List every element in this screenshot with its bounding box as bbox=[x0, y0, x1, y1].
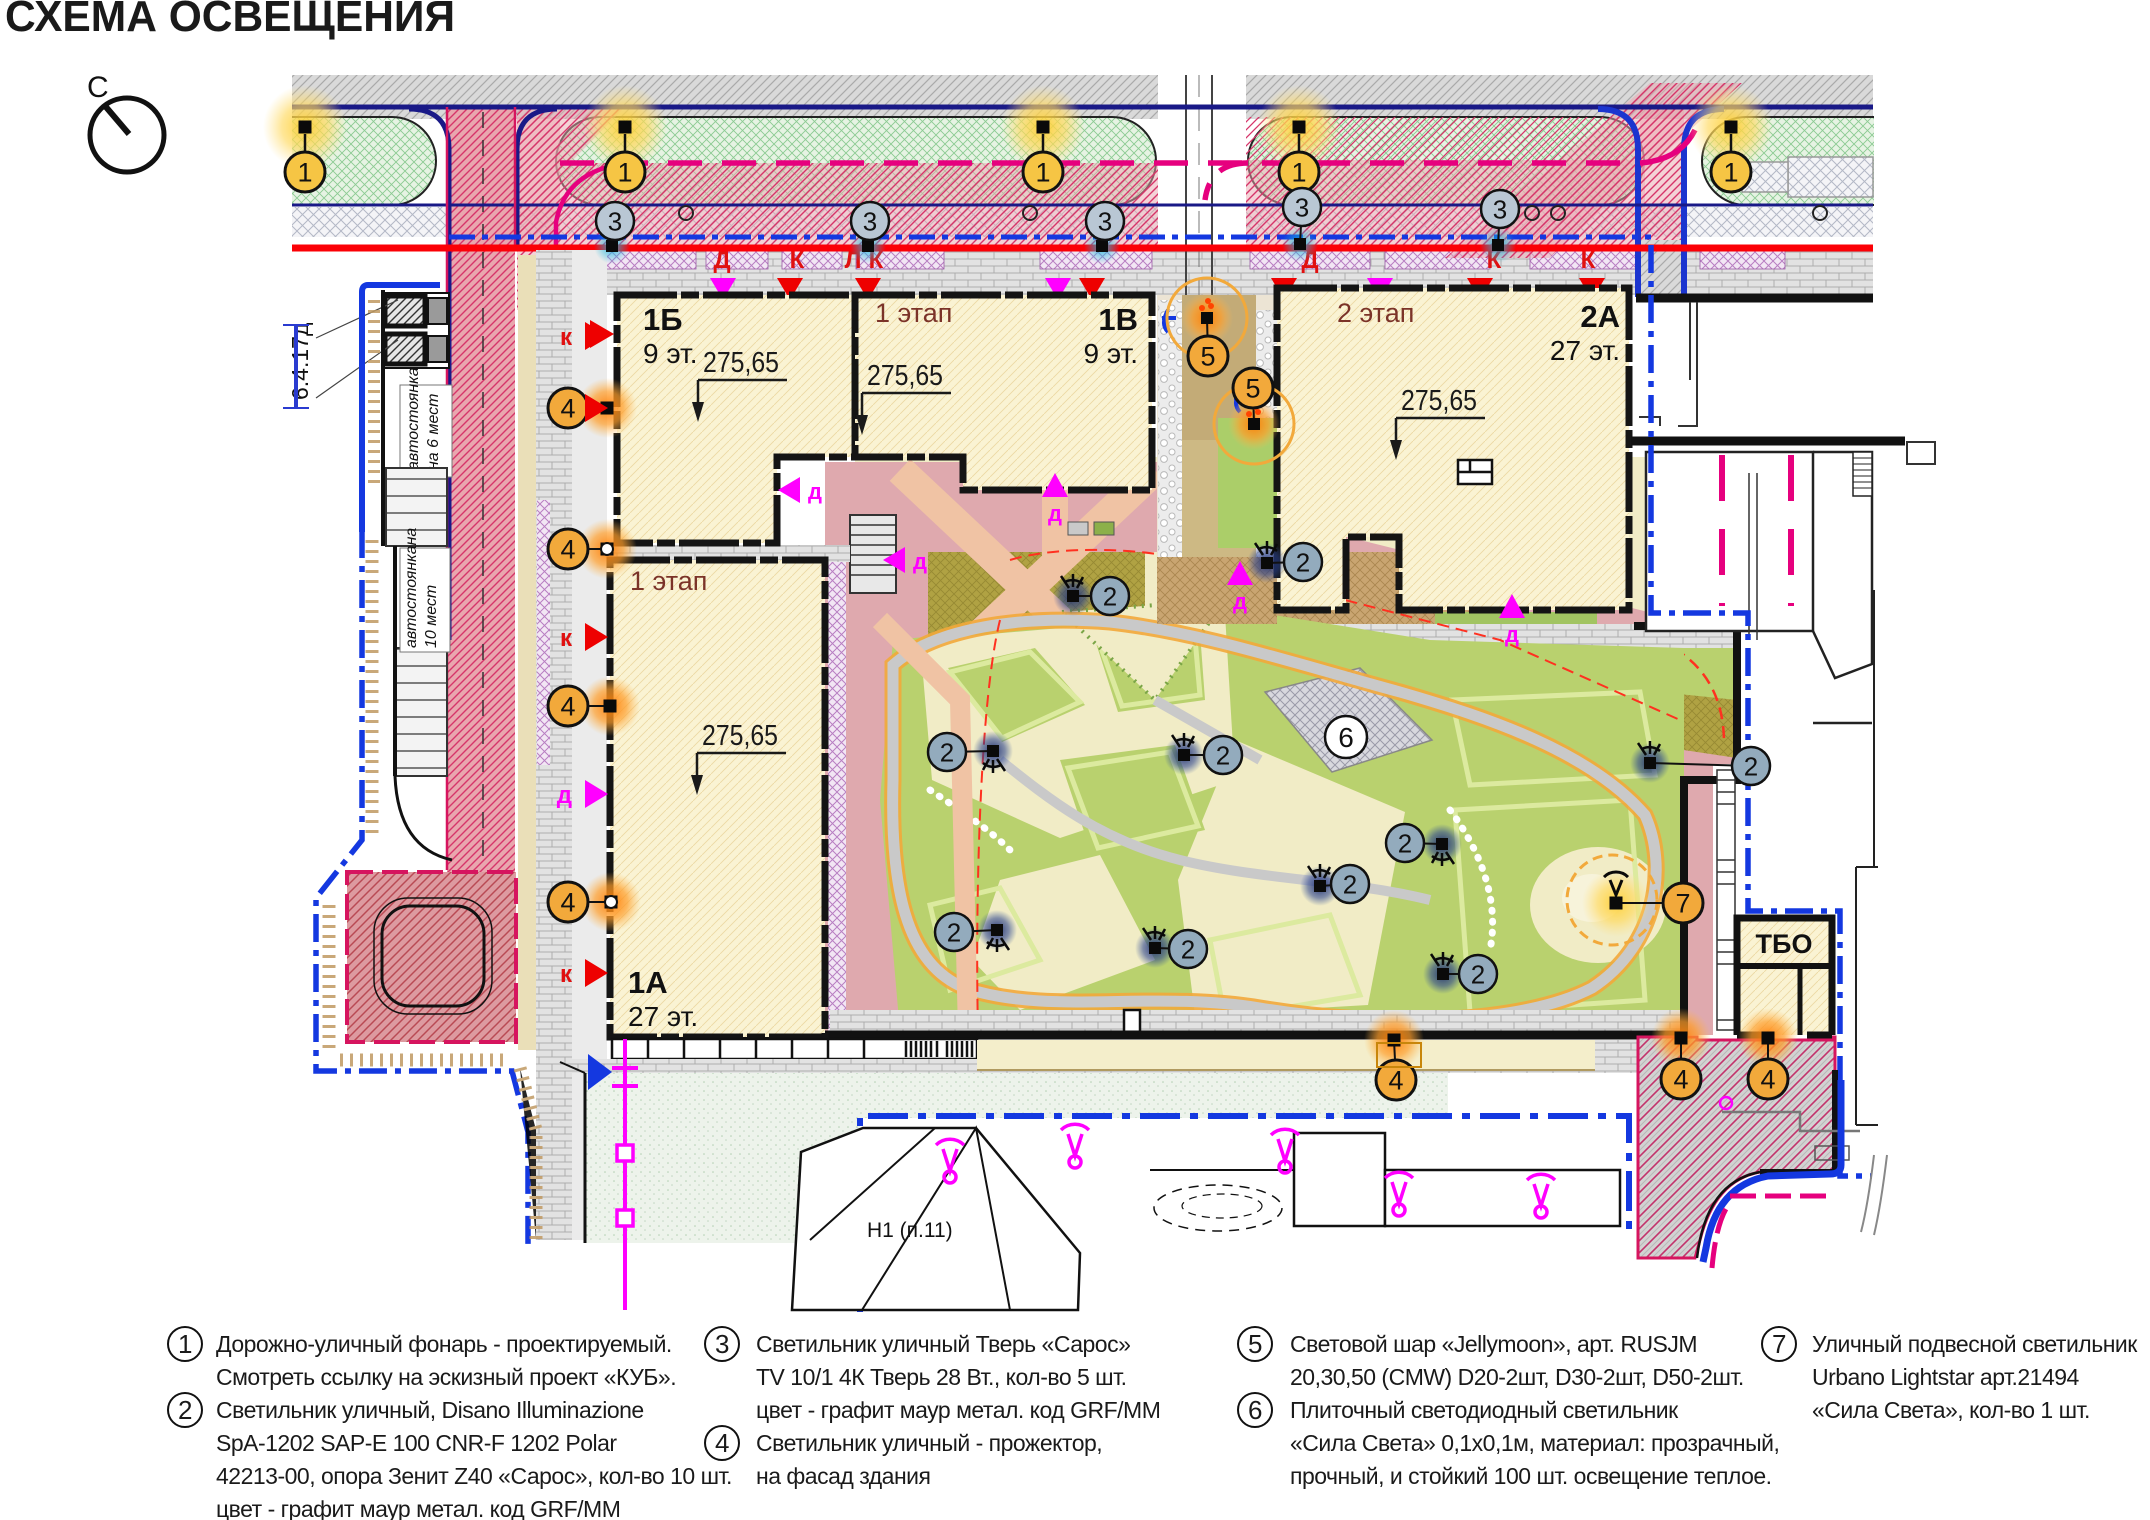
svg-text:Светильник уличный Тверь «Саро: Светильник уличный Тверь «Сарос» bbox=[756, 1331, 1130, 1357]
svg-text:10 мест: 10 мест bbox=[423, 585, 440, 648]
svg-text:5: 5 bbox=[1200, 342, 1215, 372]
svg-text:3: 3 bbox=[608, 206, 622, 236]
svg-text:д: д bbox=[913, 549, 927, 574]
svg-text:2: 2 bbox=[1398, 828, 1412, 858]
svg-text:д: д bbox=[1233, 589, 1247, 614]
svg-text:д: д bbox=[1048, 501, 1062, 526]
svg-text:автостоянка: автостоянка bbox=[405, 367, 422, 470]
svg-text:275,65: 275,65 bbox=[702, 720, 778, 752]
svg-text:2: 2 bbox=[1103, 581, 1117, 611]
svg-text:7: 7 bbox=[1772, 1329, 1786, 1359]
svg-text:д: д bbox=[808, 479, 822, 504]
svg-text:4: 4 bbox=[560, 692, 575, 722]
svg-text:42213-00, опора Зенит Z40 «Сар: 42213-00, опора Зенит Z40 «Сарос», кол-в… bbox=[216, 1463, 732, 1489]
svg-text:1: 1 bbox=[1035, 158, 1050, 188]
svg-text:1: 1 bbox=[178, 1329, 192, 1359]
svg-text:Urbano Lightstar арт.21494: Urbano Lightstar арт.21494 bbox=[1812, 1364, 2080, 1390]
svg-text:1: 1 bbox=[1291, 158, 1306, 188]
svg-text:«Сила Света» 0,1х0,1м, материа: «Сила Света» 0,1х0,1м, материал: прозрач… bbox=[1290, 1430, 1779, 1456]
svg-text:1Б: 1Б bbox=[643, 302, 683, 337]
svg-text:Смотреть ссылку на эскизный пр: Смотреть ссылку на эскизный проект «КУБ»… bbox=[216, 1364, 676, 1390]
svg-text:д: д bbox=[1505, 622, 1519, 647]
svg-text:к: к bbox=[560, 625, 573, 652]
svg-text:на фасад здания: на фасад здания bbox=[756, 1463, 930, 1489]
svg-text:3: 3 bbox=[715, 1329, 729, 1359]
svg-text:2: 2 bbox=[1296, 547, 1310, 577]
svg-text:5: 5 bbox=[1245, 374, 1260, 404]
svg-text:к: к bbox=[560, 324, 573, 351]
svg-text:9 эт.: 9 эт. bbox=[643, 338, 698, 369]
svg-text:275,65: 275,65 bbox=[703, 347, 779, 379]
svg-text:20,30,50 (CMW) D20-2шт, D30-2ш: 20,30,50 (CMW) D20-2шт, D30-2шт, D50-2шт… bbox=[1290, 1364, 1744, 1390]
svg-text:3: 3 bbox=[1295, 192, 1309, 222]
svg-text:27 эт.: 27 эт. bbox=[1550, 335, 1620, 366]
svg-text:к: к bbox=[560, 961, 573, 988]
svg-text:1 этап: 1 этап bbox=[630, 566, 707, 596]
svg-text:цвет - графит маур метал. код: цвет - графит маур метал. код GRF/MM bbox=[756, 1397, 1160, 1423]
svg-text:Н1 (п.11): Н1 (п.11) bbox=[867, 1219, 953, 1242]
svg-text:Дорожно-уличный фонарь - проек: Дорожно-уличный фонарь - проектируемый. bbox=[216, 1331, 672, 1357]
svg-text:275,65: 275,65 bbox=[1401, 385, 1477, 417]
svg-text:К: К bbox=[790, 247, 805, 274]
svg-text:Уличный подвесной светильник: Уличный подвесной светильник bbox=[1812, 1331, 2138, 1357]
svg-text:прочный, и стойкий 100 шт. осв: прочный, и стойкий 100 шт. освещение теп… bbox=[1290, 1463, 1772, 1489]
svg-text:1: 1 bbox=[297, 158, 312, 188]
svg-text:2: 2 bbox=[1471, 959, 1485, 989]
svg-text:д: д bbox=[557, 782, 572, 809]
svg-text:6: 6 bbox=[1338, 722, 1354, 753]
svg-text:SpA-1202 SAP-E 100 CNR-F 1202: SpA-1202 SAP-E 100 CNR-F 1202 Polar bbox=[216, 1430, 617, 1456]
svg-text:Светильник уличный, Disano Ill: Светильник уличный, Disano Illuminazione bbox=[216, 1397, 644, 1423]
svg-text:2: 2 bbox=[1744, 751, 1758, 781]
svg-text:4: 4 bbox=[1760, 1065, 1775, 1095]
svg-text:5: 5 bbox=[1248, 1329, 1262, 1359]
svg-text:2: 2 bbox=[1181, 934, 1195, 964]
svg-text:2: 2 bbox=[947, 917, 961, 947]
svg-text:2: 2 bbox=[178, 1395, 192, 1425]
svg-text:3: 3 bbox=[1493, 194, 1507, 224]
svg-text:9 эт.: 9 эт. bbox=[1083, 338, 1138, 369]
svg-text:27 эт.: 27 эт. bbox=[628, 1001, 698, 1032]
svg-text:С: С bbox=[87, 71, 109, 104]
svg-text:СХЕМА ОСВЕЩЕНИЯ: СХЕМА ОСВЕЩЕНИЯ bbox=[5, 0, 455, 41]
svg-text:«Сила Света», кол-во 1 шт.: «Сила Света», кол-во 1 шт. bbox=[1812, 1397, 2090, 1423]
svg-text:3: 3 bbox=[1098, 206, 1112, 236]
svg-text:К: К bbox=[1581, 247, 1596, 274]
svg-text:1: 1 bbox=[1723, 158, 1738, 188]
svg-text:4: 4 bbox=[1388, 1066, 1403, 1096]
svg-text:цвет - графит маур метал. код: цвет - графит маур метал. код GRF/MM bbox=[216, 1496, 620, 1520]
svg-text:1 этап: 1 этап bbox=[875, 298, 952, 328]
svg-text:1А: 1А bbox=[628, 965, 668, 1000]
svg-text:Световой шар «Jellymoon», арт.: Световой шар «Jellymoon», арт. RUSJM bbox=[1290, 1331, 1697, 1357]
svg-text:на 6 мест: на 6 мест bbox=[425, 393, 442, 470]
svg-text:Плиточный светодиодный светиль: Плиточный светодиодный светильник bbox=[1290, 1397, 1679, 1423]
svg-text:3: 3 bbox=[863, 206, 877, 236]
svg-text:275,65: 275,65 bbox=[867, 360, 943, 392]
svg-text:2А: 2А bbox=[1580, 299, 1620, 334]
svg-text:4: 4 bbox=[715, 1428, 729, 1458]
svg-text:Д: Д bbox=[713, 247, 730, 274]
svg-text:4: 4 bbox=[1673, 1065, 1688, 1095]
svg-text:2: 2 bbox=[1343, 869, 1357, 899]
svg-text:2 этап: 2 этап bbox=[1337, 298, 1414, 328]
svg-text:1В: 1В bbox=[1098, 302, 1138, 337]
svg-text:2: 2 bbox=[1216, 740, 1230, 770]
svg-text:2: 2 bbox=[940, 737, 954, 767]
svg-text:автостоянкана: автостоянкана bbox=[403, 528, 420, 648]
svg-text:4: 4 bbox=[560, 394, 575, 424]
svg-text:1: 1 bbox=[617, 158, 632, 188]
svg-text:TV 10/1 4К Тверь 28 Вт., кол-в: TV 10/1 4К Тверь 28 Вт., кол-во 5 шт. bbox=[756, 1364, 1127, 1390]
svg-text:ТБО: ТБО bbox=[1756, 929, 1813, 959]
svg-text:6: 6 bbox=[1248, 1395, 1262, 1425]
svg-text:6.4.17д: 6.4.17д bbox=[287, 322, 313, 400]
svg-text:4: 4 bbox=[560, 888, 575, 918]
svg-text:Светильник уличный - прожектор: Светильник уличный - прожектор, bbox=[756, 1430, 1102, 1456]
svg-text:4: 4 bbox=[560, 535, 575, 565]
svg-text:7: 7 bbox=[1675, 889, 1690, 919]
